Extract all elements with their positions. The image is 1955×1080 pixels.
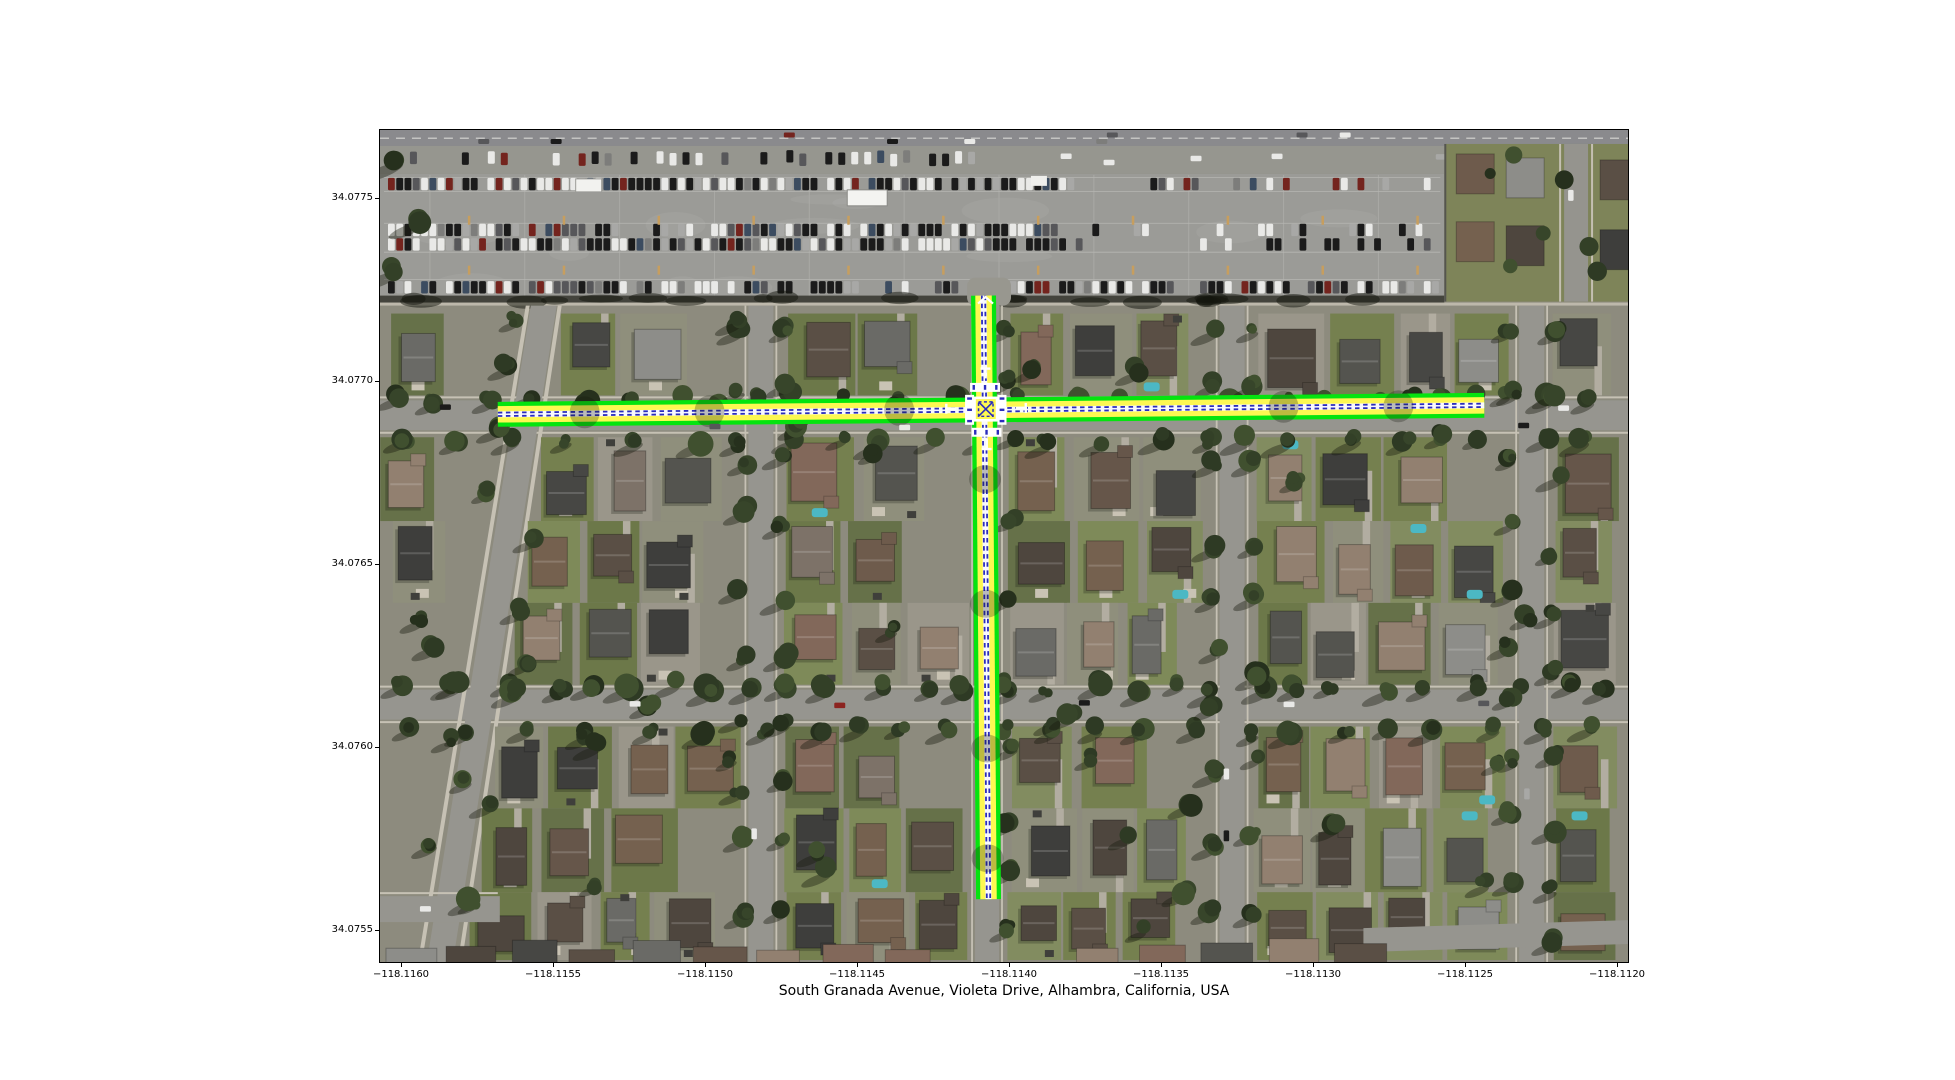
figure: 34.0775 34.0770 34.0765 34.0760 34.0755 …	[0, 0, 1955, 1080]
x-tick-label: −118.1150	[650, 969, 760, 981]
y-tick-label: 34.0760	[253, 741, 373, 753]
x-tick-label: −118.1120	[1562, 969, 1672, 981]
x-tick-mark	[553, 963, 554, 967]
x-tick-mark	[857, 963, 858, 967]
x-tick-label: −118.1125	[1410, 969, 1520, 981]
x-tick-mark	[1465, 963, 1466, 967]
x-tick-label: −118.1135	[1106, 969, 1216, 981]
y-tick-label: 34.0755	[253, 924, 373, 936]
x-tick-label: −118.1145	[802, 969, 912, 981]
x-tick-label: −118.1160	[346, 969, 456, 981]
y-tick-mark	[375, 381, 379, 382]
y-tick-label: 34.0775	[253, 192, 373, 204]
y-tick-mark	[375, 198, 379, 199]
map-axes	[379, 129, 1629, 963]
x-tick-label: −118.1155	[498, 969, 608, 981]
x-tick-mark	[705, 963, 706, 967]
axis-title: South Granada Avenue, Violeta Drive, Alh…	[379, 983, 1629, 1000]
x-tick-mark	[401, 963, 402, 967]
y-tick-label: 34.0765	[253, 558, 373, 570]
y-tick-mark	[375, 564, 379, 565]
x-tick-mark	[1617, 963, 1618, 967]
satellite-map-image	[380, 130, 1628, 962]
y-tick-mark	[375, 930, 379, 931]
x-tick-label: −118.1130	[1258, 969, 1368, 981]
x-tick-mark	[1009, 963, 1010, 967]
x-tick-mark	[1161, 963, 1162, 967]
y-tick-mark	[375, 747, 379, 748]
x-tick-mark	[1313, 963, 1314, 967]
x-tick-label: −118.1140	[954, 969, 1064, 981]
y-tick-label: 34.0770	[253, 375, 373, 387]
